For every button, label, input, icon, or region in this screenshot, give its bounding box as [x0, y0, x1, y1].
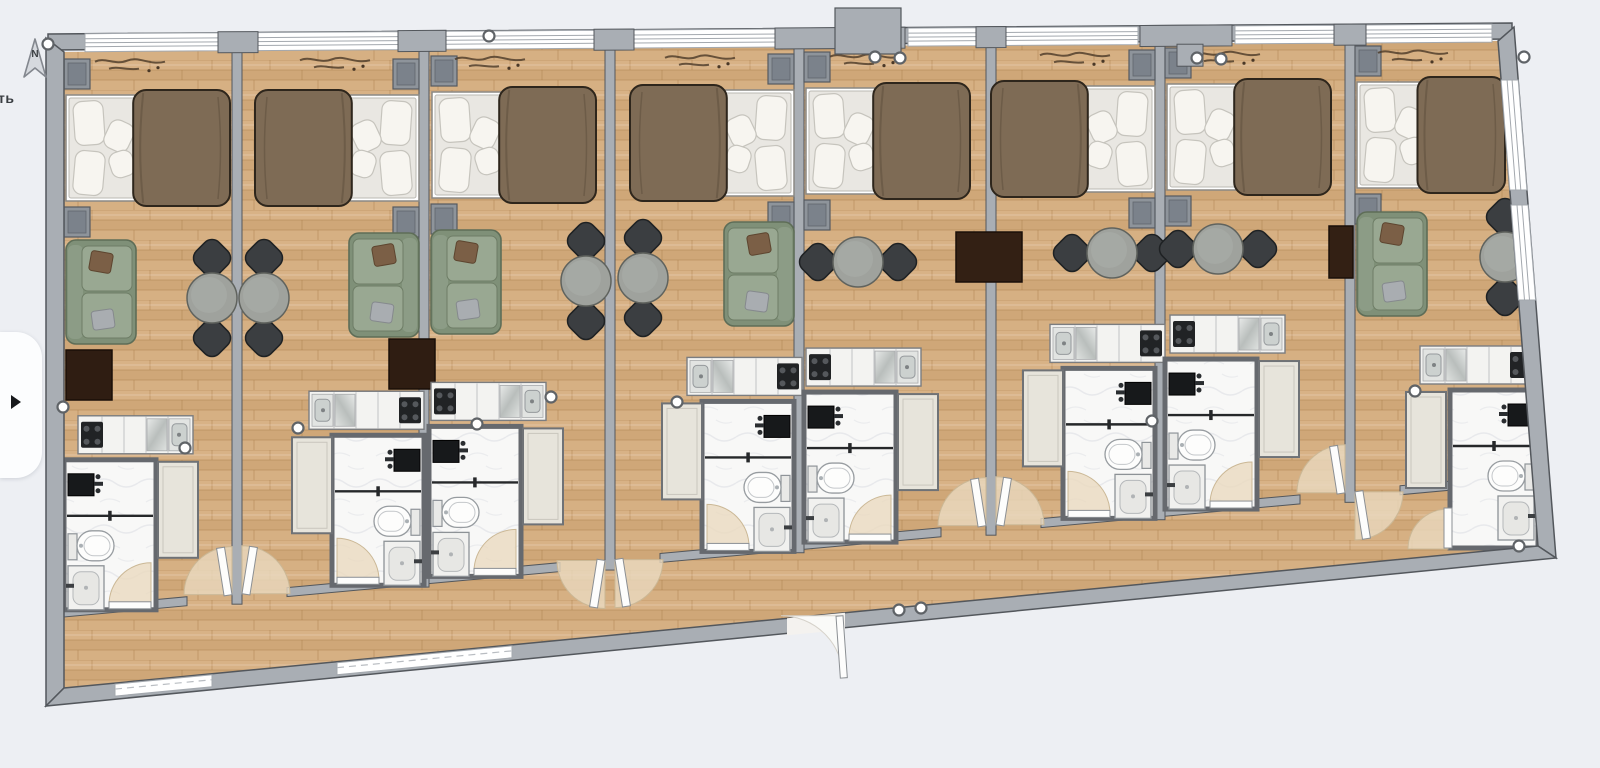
partition-wall[interactable]: [605, 44, 615, 570]
kitchenette[interactable]: [309, 391, 424, 429]
dining-table-set[interactable]: [618, 215, 668, 340]
wall-handle[interactable]: [180, 443, 191, 454]
wardrobe[interactable]: [1259, 361, 1299, 457]
bathroom[interactable]: [804, 392, 896, 542]
floor-planner-stage: N ть: [0, 0, 1600, 768]
wall-handle[interactable]: [1519, 52, 1530, 63]
bathroom[interactable]: [1165, 359, 1257, 509]
kitchenette[interactable]: [78, 416, 193, 454]
compass-label: N: [22, 49, 48, 60]
wall-handle[interactable]: [1216, 54, 1227, 65]
dining-table-set[interactable]: [561, 218, 611, 343]
dining-table-set[interactable]: [795, 237, 920, 287]
wall-handle[interactable]: [1514, 541, 1525, 552]
clipped-sidebar-text: ть: [0, 90, 14, 106]
kitchenette[interactable]: [1420, 346, 1535, 384]
wall-handle[interactable]: [1192, 53, 1203, 64]
side-table[interactable]: [66, 350, 112, 400]
bathroom[interactable]: [702, 401, 794, 551]
kitchenette[interactable]: [687, 357, 802, 395]
bathroom[interactable]: [429, 426, 521, 576]
toilet-icon: [1142, 442, 1151, 468]
wardrobe[interactable]: [662, 403, 702, 499]
wall-handle[interactable]: [870, 52, 881, 63]
washbasin-icon: [394, 449, 420, 471]
wardrobe[interactable]: [1023, 370, 1063, 466]
washbasin-icon: [1169, 373, 1195, 395]
tv-console[interactable]: [1329, 226, 1353, 278]
toilet-icon: [433, 500, 442, 526]
left-panel-toggle[interactable]: [0, 332, 42, 478]
bathroom[interactable]: [332, 435, 424, 585]
sofa[interactable]: [431, 230, 501, 334]
sofa[interactable]: [349, 233, 419, 337]
kitchenette[interactable]: [806, 348, 921, 386]
wardrobe[interactable]: [1406, 392, 1446, 488]
wall-handle[interactable]: [672, 397, 683, 408]
washbasin-icon: [68, 474, 94, 496]
wall-handle[interactable]: [58, 402, 69, 413]
partition-wall[interactable]: [232, 47, 242, 604]
wardrobe[interactable]: [292, 437, 332, 533]
toilet-icon: [781, 475, 790, 501]
wall-handle[interactable]: [1147, 416, 1158, 427]
main-entrance-door[interactable]: [781, 613, 847, 678]
floorplan-canvas[interactable]: [0, 0, 1600, 768]
wardrobe[interactable]: [158, 462, 198, 558]
kitchenette[interactable]: [1170, 315, 1285, 353]
wall-handle[interactable]: [484, 31, 495, 42]
sofa[interactable]: [724, 222, 794, 326]
sofa[interactable]: [66, 240, 136, 344]
dining-table-set[interactable]: [1155, 224, 1280, 274]
washbasin-icon: [764, 415, 790, 437]
bathroom[interactable]: [64, 460, 156, 610]
wardrobe[interactable]: [523, 428, 563, 524]
toilet-icon: [411, 509, 420, 535]
bathroom[interactable]: [1063, 368, 1155, 518]
tv-console[interactable]: [956, 232, 1022, 282]
chevron-right-icon: [11, 395, 21, 409]
toilet-icon: [68, 534, 77, 560]
wall-handle[interactable]: [895, 53, 906, 64]
side-table[interactable]: [389, 339, 435, 389]
dining-table-set[interactable]: [1049, 228, 1174, 278]
toilet-icon: [808, 466, 817, 492]
kitchenette[interactable]: [431, 382, 546, 420]
wall-handle[interactable]: [916, 603, 927, 614]
compass-north-indicator: N: [22, 38, 48, 80]
dining-table-set[interactable]: [187, 235, 237, 360]
sofa[interactable]: [1357, 212, 1427, 316]
washbasin-icon: [808, 406, 834, 428]
wardrobe[interactable]: [898, 394, 938, 490]
wall-handle[interactable]: [472, 419, 483, 430]
washbasin-icon: [1125, 382, 1151, 404]
wall-handle[interactable]: [894, 605, 905, 616]
wall-handle[interactable]: [293, 423, 304, 434]
wall-handle[interactable]: [546, 392, 557, 403]
kitchenette[interactable]: [1050, 324, 1165, 362]
dining-table-set[interactable]: [239, 235, 289, 360]
washbasin-icon: [433, 440, 459, 462]
wall-handle[interactable]: [1410, 386, 1421, 397]
toilet-icon: [1169, 433, 1178, 459]
